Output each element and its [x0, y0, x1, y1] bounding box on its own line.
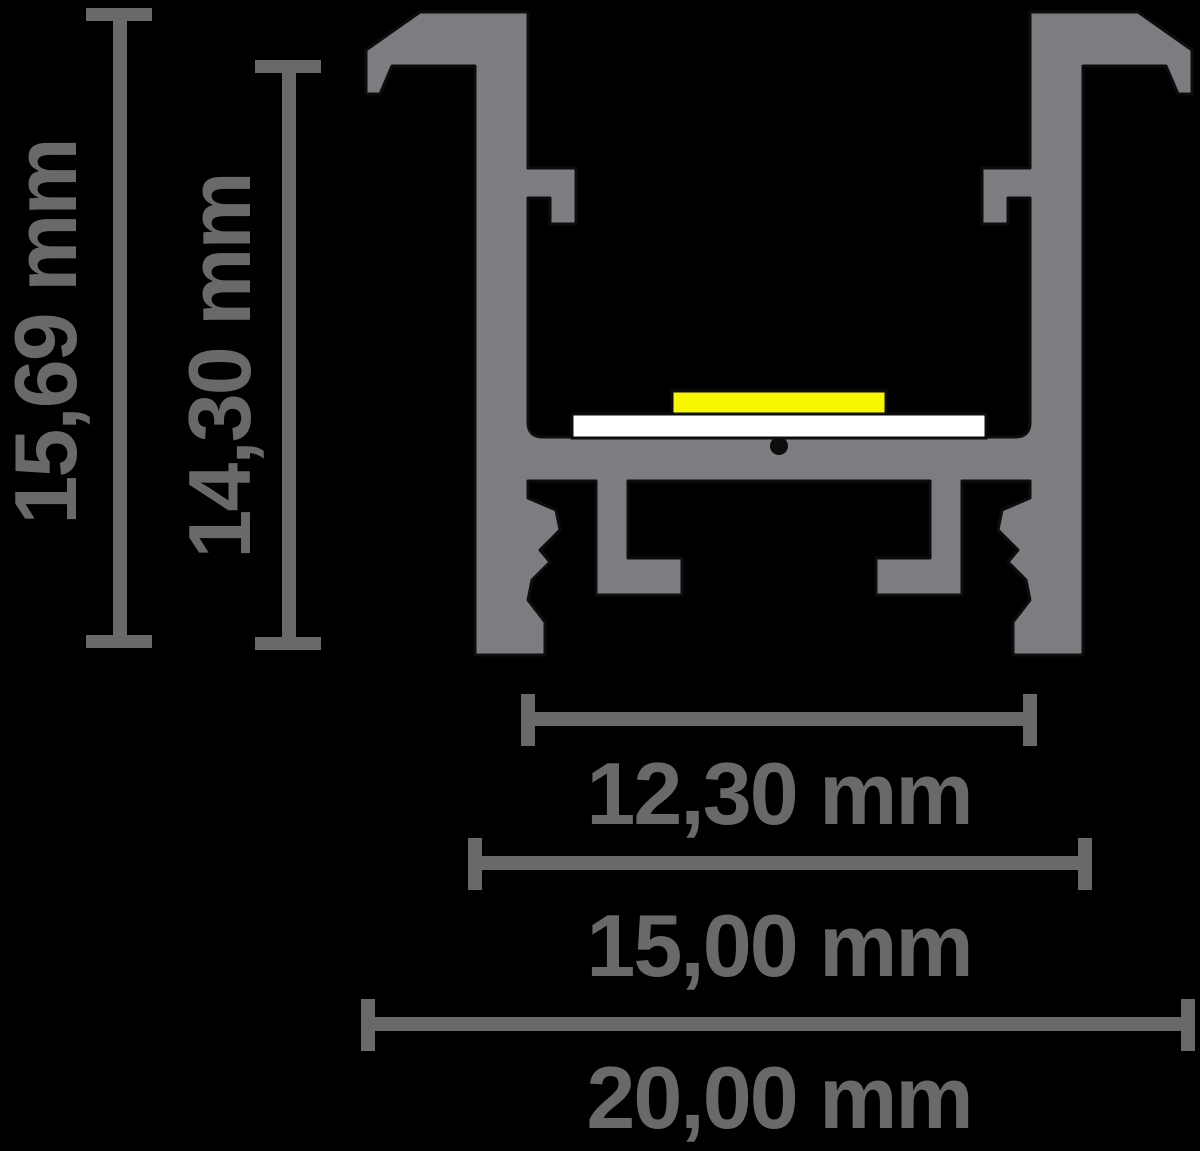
center-mark-dot	[770, 437, 788, 455]
dim-inner-width: 12,30 mm	[521, 694, 1037, 843]
dim-body-width-label: 15,00 mm	[586, 896, 971, 995]
dim-inner-height-label: 14,30 mm	[170, 173, 269, 558]
dim-inner-width-label: 12,30 mm	[586, 744, 971, 843]
dim-end-tick	[1023, 694, 1037, 746]
dim-end-tick	[361, 999, 375, 1051]
dim-overall-height-label: 15,69 mm	[0, 139, 95, 524]
dim-line	[282, 64, 296, 650]
dim-end-tick	[468, 838, 482, 890]
dim-end-tick	[86, 635, 152, 648]
profile-cross-section-drawing: 15,69 mm 14,30 mm 12,30 mm 15	[0, 0, 1200, 1151]
dim-line	[368, 1017, 1188, 1031]
dim-end-tick	[1078, 838, 1092, 890]
dim-line	[528, 712, 1030, 726]
dim-line	[113, 10, 127, 642]
dim-end-tick	[1181, 999, 1195, 1051]
led-strip	[672, 391, 886, 414]
dim-overall-width-label: 20,00 mm	[586, 1048, 971, 1147]
dim-end-tick	[255, 60, 321, 73]
pcb-strip	[572, 414, 986, 438]
dim-end-tick	[521, 694, 535, 746]
dim-end-tick	[255, 637, 321, 650]
dim-end-tick	[86, 8, 152, 21]
dim-line	[475, 856, 1085, 870]
diagram-canvas: 15,69 mm 14,30 mm 12,30 mm 15	[0, 0, 1200, 1151]
